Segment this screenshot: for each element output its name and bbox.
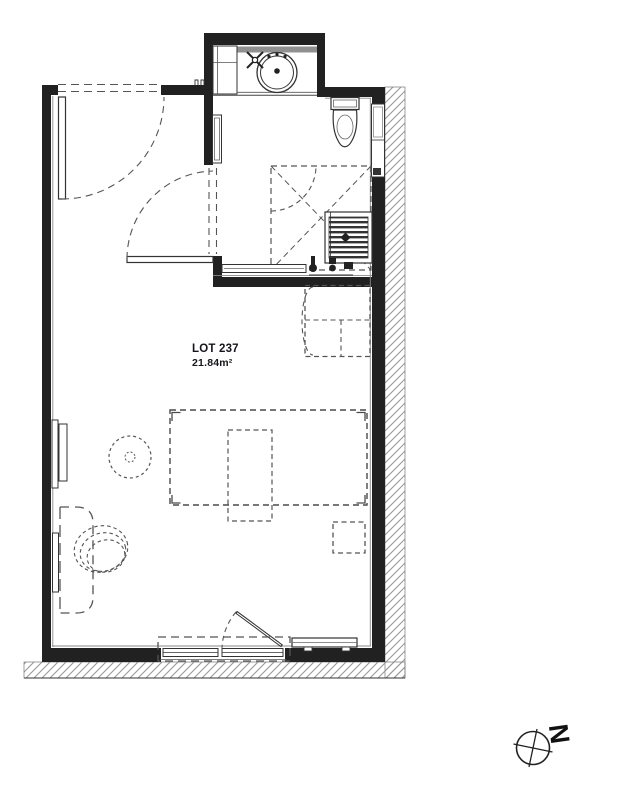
mixer-valve-icon bbox=[309, 264, 317, 272]
vanity-backsplash bbox=[234, 47, 317, 53]
wall-top-a bbox=[42, 85, 58, 95]
wall-bottom-right bbox=[285, 648, 385, 662]
area-label: 21.84m² bbox=[192, 357, 233, 369]
faucet-body-icon bbox=[329, 258, 336, 264]
hatch-band-right bbox=[385, 87, 405, 678]
floor-plan-page: LOT 237 21.84m² N bbox=[0, 0, 632, 800]
faucet-valve-icon bbox=[329, 265, 336, 272]
north-label: N bbox=[543, 722, 575, 745]
floor-plan-canvas: LOT 237 21.84m² N bbox=[0, 0, 632, 800]
wall-top-b bbox=[161, 85, 210, 95]
bathroom-door-leaf bbox=[127, 257, 213, 263]
hatch-band-bottom bbox=[24, 662, 405, 678]
wall-left bbox=[42, 85, 51, 662]
drain-box-icon bbox=[344, 262, 353, 269]
washbasin-drain bbox=[274, 68, 280, 74]
wall-bathroom-left bbox=[204, 33, 213, 165]
shelf-unit bbox=[213, 46, 237, 94]
lot-label: LOT 237 bbox=[192, 343, 239, 355]
page-background bbox=[0, 0, 632, 800]
radiator-left-upper bbox=[52, 420, 67, 488]
wall-bathroom-door-jamb bbox=[213, 256, 222, 281]
wall-bathroom-top bbox=[204, 33, 325, 45]
wall-niche bbox=[372, 104, 385, 177]
entrance-door-leaf bbox=[59, 97, 66, 199]
mirror-panel bbox=[213, 115, 222, 163]
wall-bottom-left bbox=[42, 648, 161, 662]
radiator-left-lower bbox=[53, 533, 59, 592]
